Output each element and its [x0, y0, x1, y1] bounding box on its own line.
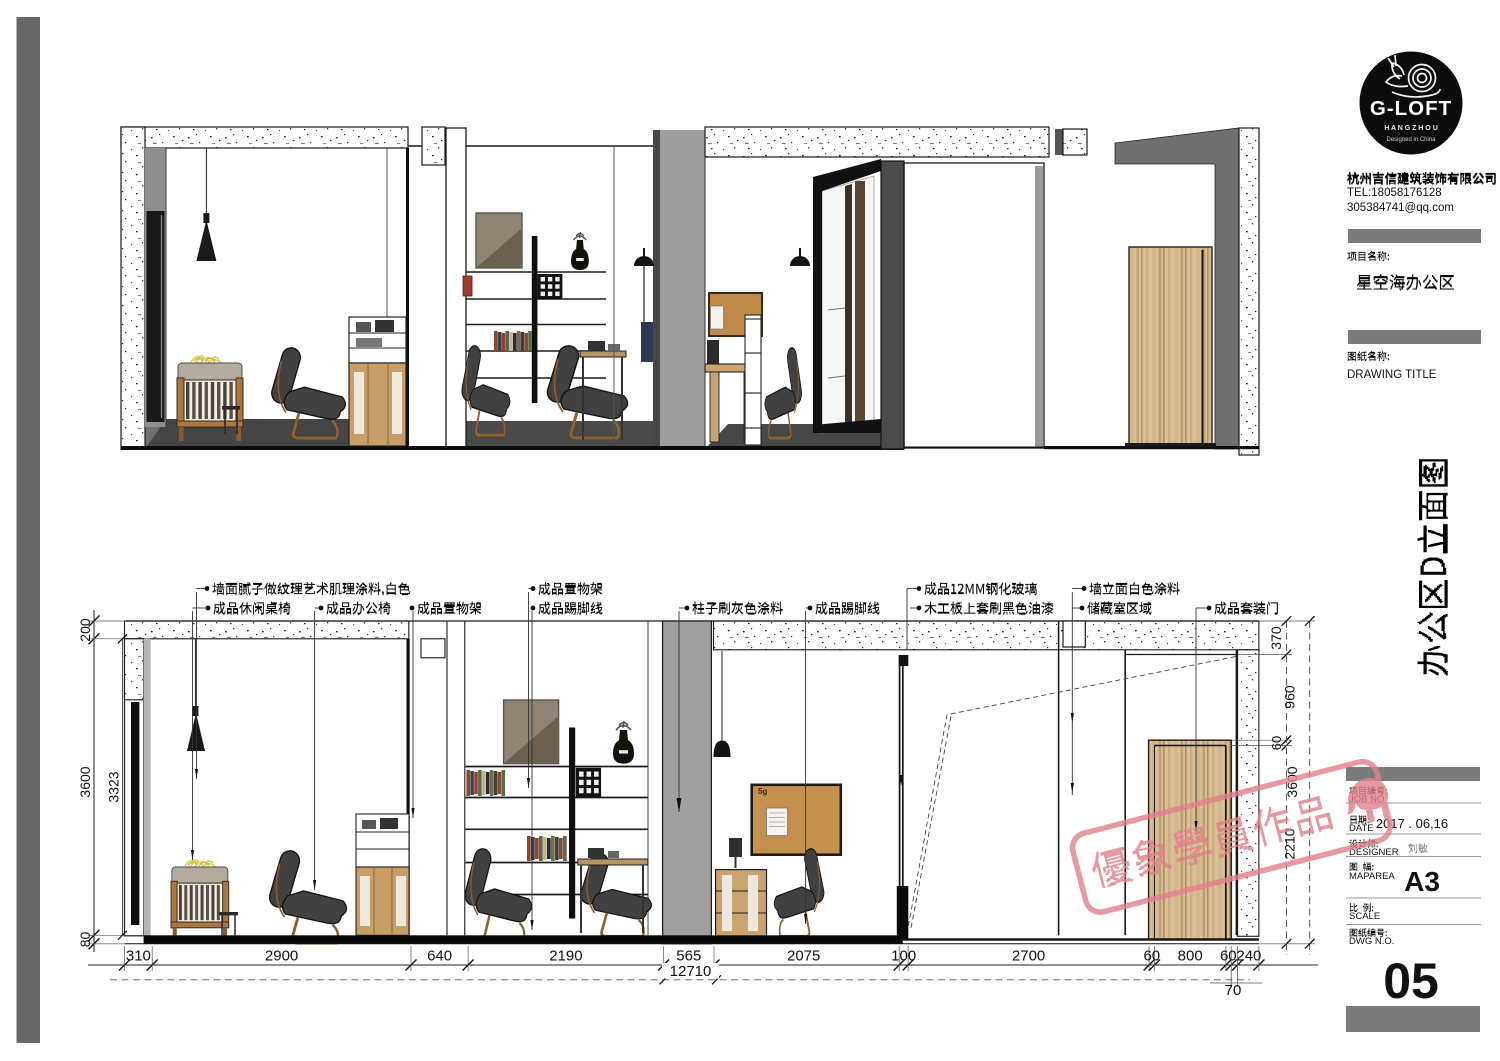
svg-text:305384741@qq.com: 305384741@qq.com: [1347, 202, 1454, 214]
svg-text:310: 310: [126, 948, 151, 965]
svg-text:DATE: DATE: [1349, 823, 1374, 834]
svg-text:A3: A3: [1404, 866, 1440, 897]
svg-text:240: 240: [1236, 948, 1261, 965]
svg-text:640: 640: [427, 948, 452, 965]
svg-text:370: 370: [1268, 626, 1284, 650]
svg-text:800: 800: [1178, 948, 1203, 965]
svg-text:H A N G Z H O U: H A N G Z H O U: [1384, 125, 1438, 132]
svg-text:2190: 2190: [549, 948, 582, 965]
svg-text:MAPAREA: MAPAREA: [1349, 871, 1395, 882]
svg-text:2075: 2075: [787, 948, 820, 965]
svg-text:60: 60: [1220, 948, 1237, 965]
svg-text:3323: 3323: [105, 771, 121, 802]
svg-text:2900: 2900: [265, 948, 298, 965]
svg-text:100: 100: [891, 948, 916, 965]
svg-text:70: 70: [1225, 982, 1242, 999]
svg-text:2700: 2700: [1012, 948, 1045, 965]
svg-text:SCALE: SCALE: [1349, 911, 1380, 922]
svg-text:2210: 2210: [1282, 828, 1298, 859]
svg-text:12710: 12710: [670, 963, 712, 980]
svg-text:60: 60: [1143, 948, 1160, 965]
svg-text:G-LOFT: G-LOFT: [1370, 97, 1452, 120]
svg-text:960: 960: [1282, 685, 1298, 709]
svg-text:TEL:18058176128: TEL:18058176128: [1347, 187, 1442, 199]
svg-text:05: 05: [1383, 953, 1439, 1009]
svg-text:3600: 3600: [77, 766, 93, 797]
svg-text:DRAWING TITLE: DRAWING TITLE: [1347, 369, 1437, 381]
svg-text:5g: 5g: [758, 787, 767, 796]
svg-text:DWG N.O.: DWG N.O.: [1349, 936, 1394, 947]
svg-text:565: 565: [676, 948, 701, 965]
svg-text:200: 200: [77, 618, 93, 642]
svg-text:60: 60: [1269, 736, 1284, 750]
svg-text:Designed in China: Designed in China: [1386, 137, 1436, 143]
svg-text:80: 80: [77, 932, 93, 948]
